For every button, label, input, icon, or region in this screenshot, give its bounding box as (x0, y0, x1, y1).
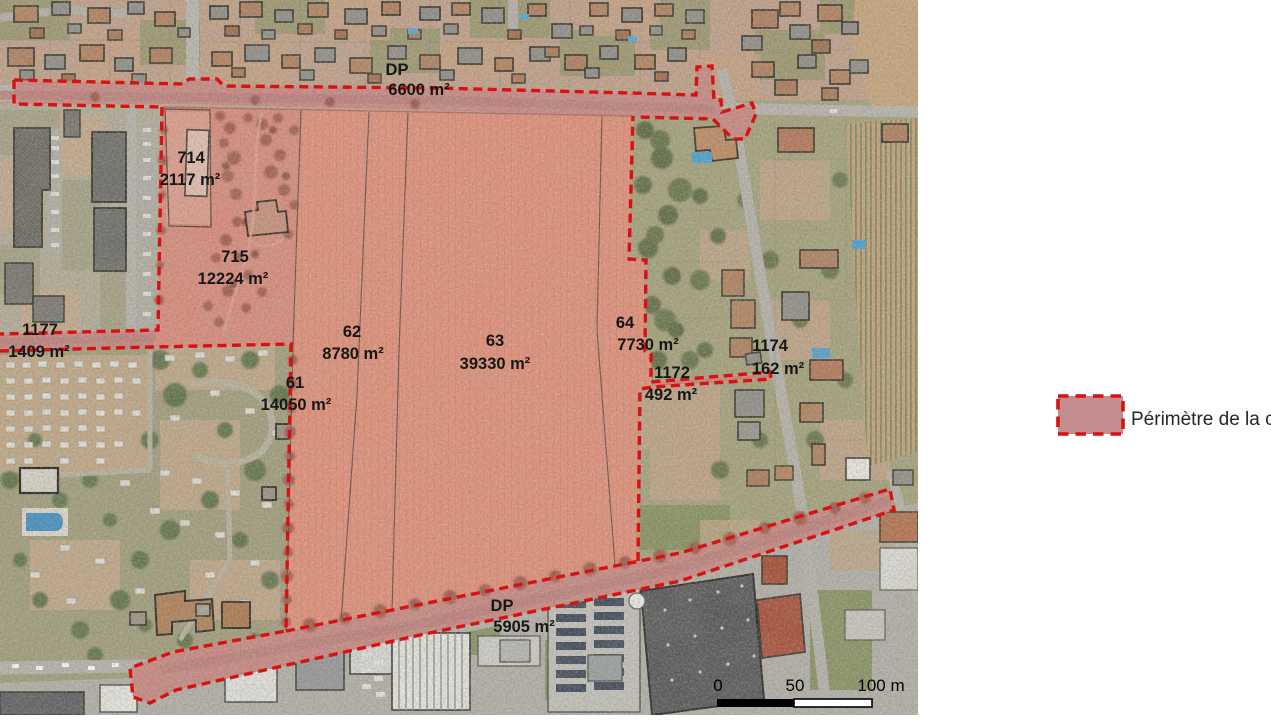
svg-text:1172: 1172 (654, 364, 690, 382)
svg-text:6600 m²: 6600 m² (388, 81, 450, 99)
svg-text:61: 61 (286, 374, 304, 392)
svg-text:12224 m²: 12224 m² (198, 270, 269, 288)
svg-text:64: 64 (616, 314, 635, 332)
svg-text:50: 50 (786, 676, 805, 695)
svg-text:714: 714 (177, 149, 205, 167)
svg-text:DP: DP (491, 597, 514, 615)
svg-text:8780 m²: 8780 m² (322, 345, 384, 363)
svg-text:1409 m²: 1409 m² (8, 343, 70, 361)
svg-text:62: 62 (343, 323, 361, 341)
svg-text:0: 0 (713, 676, 722, 695)
svg-text:2117 m²: 2117 m² (160, 171, 221, 189)
svg-text:39330 m²: 39330 m² (460, 355, 531, 373)
svg-text:7730 m²: 7730 m² (617, 336, 679, 354)
svg-text:492 m²: 492 m² (645, 386, 698, 404)
svg-text:162 m²: 162 m² (752, 360, 805, 378)
svg-text:5905 m²: 5905 m² (493, 618, 555, 636)
svg-text:Périmètre de la c: Périmètre de la c (1131, 409, 1271, 430)
svg-text:100 m: 100 m (857, 676, 904, 695)
svg-text:14050 m²: 14050 m² (261, 396, 332, 414)
svg-text:63: 63 (486, 332, 504, 350)
svg-text:1177: 1177 (22, 321, 58, 339)
svg-text:715: 715 (221, 248, 249, 266)
svg-text:DP: DP (386, 61, 409, 79)
svg-text:1174: 1174 (752, 337, 789, 355)
